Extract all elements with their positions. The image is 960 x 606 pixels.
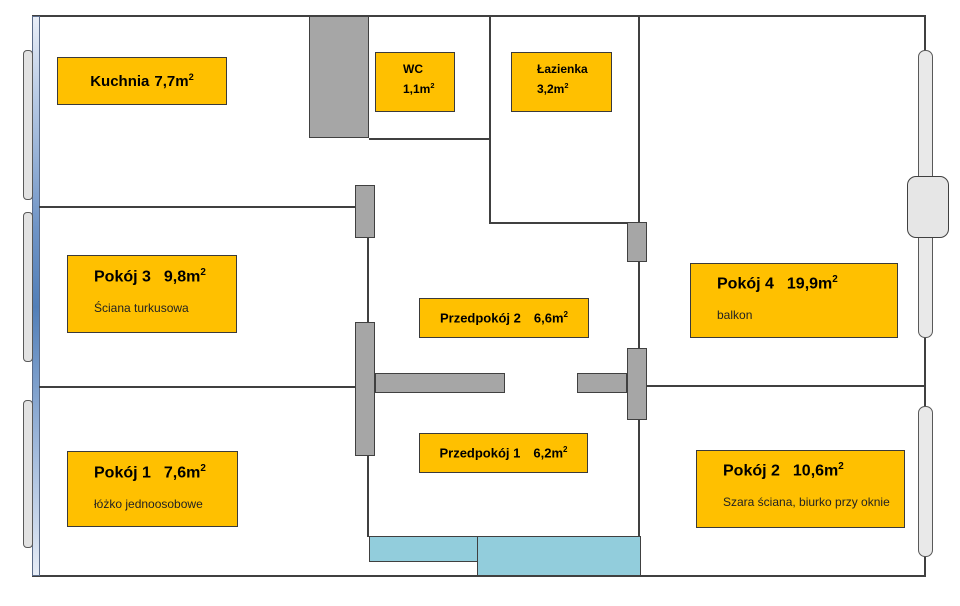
window-left-3 — [23, 400, 33, 548]
wall-exterior-left-blue — [32, 16, 40, 576]
window-left-1 — [23, 50, 33, 200]
door-jamb-left-lower — [355, 322, 375, 456]
room-label-lazienka: Łazienka 3,2m2 — [511, 52, 612, 112]
door-jamb-right-upper — [627, 222, 647, 262]
room-title: Przedpokój 16,2m2 — [439, 445, 567, 460]
room-title: Przedpokój 26,6m2 — [440, 310, 568, 325]
wall-hall-left-mid — [367, 238, 369, 322]
room-note: Szara ściana, biurko przy oknie — [723, 495, 904, 509]
room-label-pokoj2: Pokój 210,6m2 Szara ściana, biurko przy … — [696, 450, 905, 528]
room-title: Pokój 419,9m2 — [717, 274, 897, 293]
wall-block-top — [309, 16, 369, 138]
wardrobe-right — [477, 536, 641, 576]
wall-divider-pokoj3-pokoj1 — [39, 386, 355, 388]
wall-hall-right-mid — [638, 262, 640, 348]
wall-divider-pokoj4-pokoj2 — [647, 385, 924, 387]
room-label-wc: WC 1,1m2 — [375, 52, 455, 112]
window-left-2 — [23, 212, 33, 362]
wall-exterior-right-upper — [924, 16, 926, 52]
floor-plan: Kuchnia7,7m2 WC 1,1m2 Łazienka 3,2m2 Pok… — [0, 0, 960, 606]
wall-exterior-top — [32, 15, 926, 17]
wall-hall-left-lower — [367, 456, 369, 537]
room-note: Ściana turkusowa — [94, 301, 236, 315]
window-right-2 — [918, 406, 933, 557]
room-title: Pokój 17,6m2 — [94, 463, 237, 482]
room-label-przedpokoj1: Przedpokój 16,2m2 — [419, 433, 588, 473]
room-label-pokoj3: Pokój 39,8m2 Ściana turkusowa — [67, 255, 237, 333]
wall-kuchnia-bottom — [39, 206, 356, 208]
wall-lazienka-left — [489, 16, 491, 224]
room-title: Łazienka — [537, 62, 611, 76]
room-title: Pokój 39,8m2 — [94, 267, 236, 286]
wardrobe-left — [369, 536, 478, 562]
room-label-kuchnia: Kuchnia7,7m2 — [57, 57, 227, 105]
wall-hall-right-lower — [638, 420, 640, 537]
balcony-door-handle — [907, 176, 949, 238]
room-area: 3,2m2 — [537, 81, 611, 96]
door-jamb-right-lower — [627, 348, 647, 420]
wall-lazienka-bottom — [489, 222, 641, 224]
door-jamb-left-upper — [355, 185, 375, 238]
wall-exterior-right-lower — [924, 556, 926, 577]
room-area: 1,1m2 — [403, 81, 454, 96]
wall-wc-bottom — [369, 138, 490, 140]
room-label-pokoj1: Pokój 17,6m2 łóżko jednoosobowe — [67, 451, 238, 527]
wall-lazienka-right — [638, 16, 640, 222]
room-note: łóżko jednoosobowe — [94, 497, 237, 511]
room-title: WC — [403, 62, 454, 76]
room-title: Pokój 210,6m2 — [723, 461, 904, 480]
door-leaf-left — [375, 373, 505, 393]
room-note: balkon — [717, 308, 897, 322]
wall-exterior-right-middle — [924, 337, 926, 408]
room-label-pokoj4: Pokój 419,9m2 balkon — [690, 263, 898, 338]
door-leaf-right — [577, 373, 627, 393]
room-title: Kuchnia7,7m2 — [90, 72, 194, 90]
room-label-przedpokoj2: Przedpokój 26,6m2 — [419, 298, 589, 338]
